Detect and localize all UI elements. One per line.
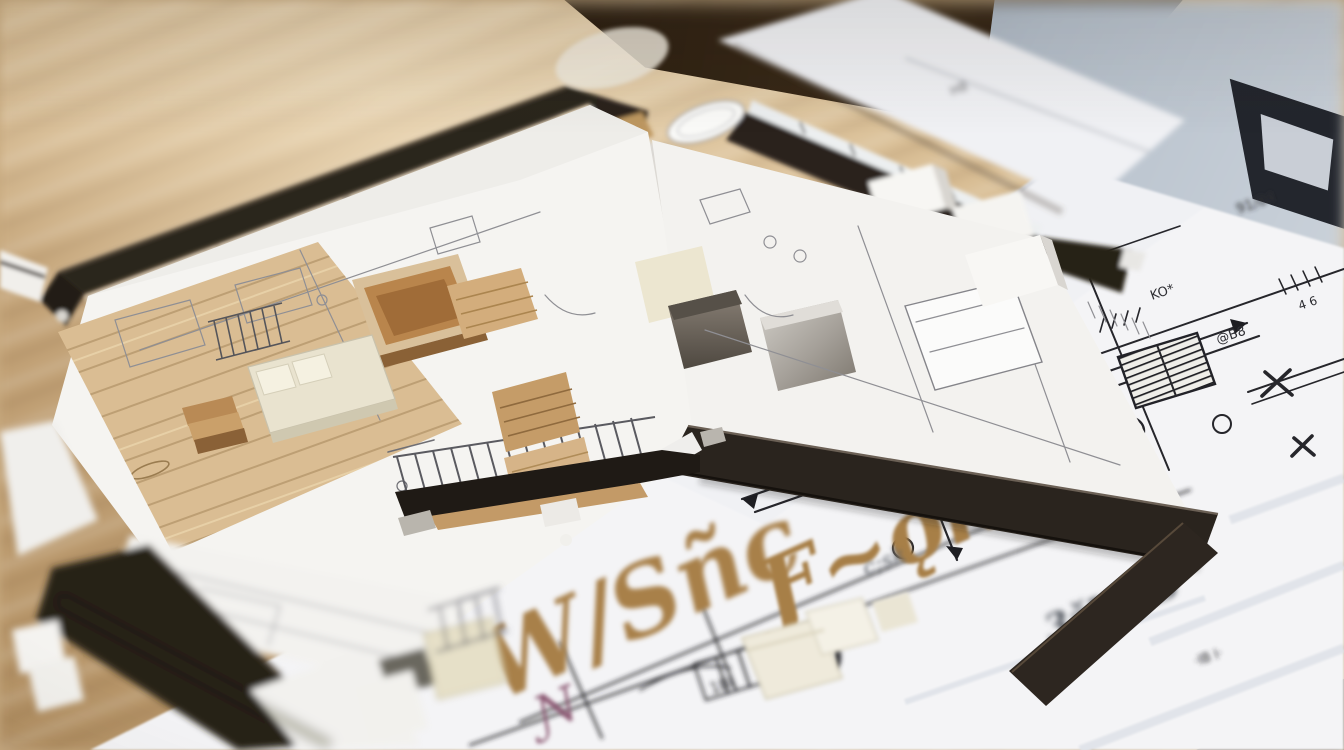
photo-scene: H8 xyxy=(0,0,1344,750)
annotation: 91/84 xyxy=(1234,189,1277,217)
model-and-blueprint: H8 xyxy=(0,0,1344,750)
